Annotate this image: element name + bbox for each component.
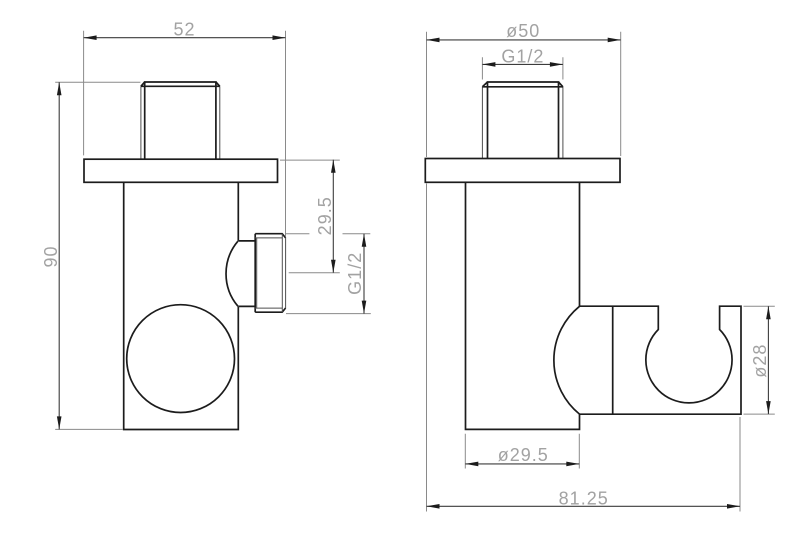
svg-text:G1/2: G1/2 <box>501 47 544 67</box>
svg-text:29.5: 29.5 <box>315 196 335 235</box>
svg-text:52: 52 <box>173 19 195 39</box>
svg-text:G1/2: G1/2 <box>345 252 365 295</box>
svg-text:ø28: ø28 <box>750 344 770 378</box>
svg-text:81.25: 81.25 <box>559 489 609 509</box>
svg-text:90: 90 <box>41 245 61 267</box>
svg-text:ø50: ø50 <box>506 21 540 41</box>
svg-text:ø29.5: ø29.5 <box>498 445 549 465</box>
